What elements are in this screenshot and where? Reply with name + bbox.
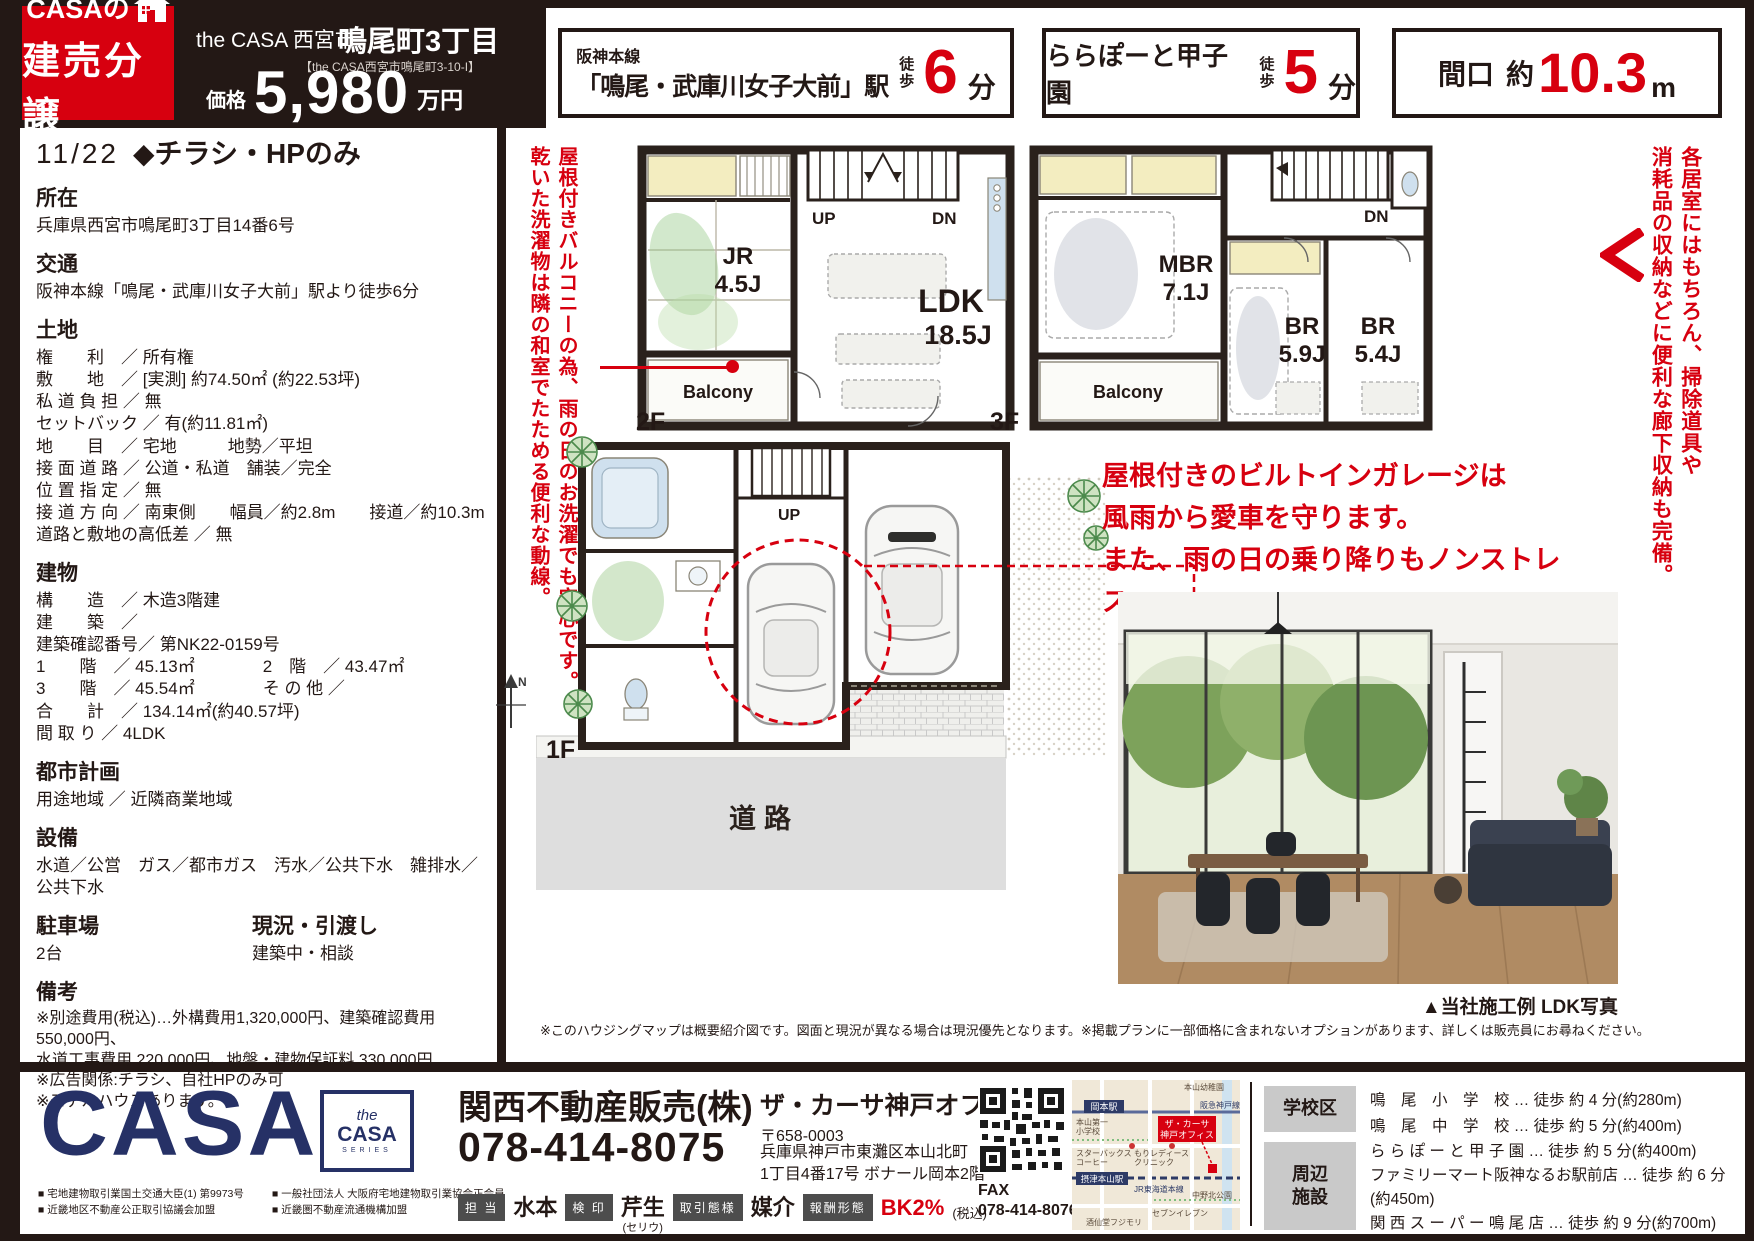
- map-park: 中野北公園: [1192, 1190, 1232, 1200]
- header-series: the CASA 西宮市: [196, 24, 356, 54]
- handover-value: 建築中・相談: [252, 943, 486, 965]
- price-block: 価格 5,980 万円: [206, 64, 463, 121]
- section-utilities: 設備 水道／公営 ガス／都市ガス 汚水／公共下水 雑排水／公共下水: [36, 822, 486, 899]
- frontage-value: 10.3: [1538, 48, 1647, 98]
- rail-line-label: 阪神本線: [576, 43, 888, 67]
- fax-label: FAX: [978, 1182, 1009, 1200]
- map-office-line2: 神戸オフィス: [1160, 1129, 1214, 1140]
- map-seven: セブンイレブン: [1152, 1208, 1208, 1218]
- school-district-label: 学校区: [1264, 1086, 1356, 1132]
- station-badge: 阪神本線 「鳴尾・武庫川女子大前」駅 徒歩 6 分: [558, 28, 1014, 118]
- section-body: 権 利 ／ 所有権 敷 地 ／ [実測] 約74.50㎡ (約22.53坪) 私…: [36, 347, 486, 546]
- section-heading: 土地: [36, 314, 486, 344]
- logo-casa-text: CASAの: [26, 0, 130, 26]
- section-access: 交通 阪神本線「鳴尾・武庫川女子大前」駅より徒歩6分: [36, 248, 486, 303]
- car-small: [748, 564, 834, 724]
- map-clinic-line1: もりレディース: [1134, 1148, 1189, 1158]
- staff-value-torihiki: 媒介: [751, 1194, 795, 1219]
- staff-value-kenin: 芹生: [621, 1194, 665, 1219]
- section-heading: 備考: [36, 976, 486, 1006]
- frontage-approx: 約: [1506, 53, 1534, 93]
- storage-copy-vertical: 各居室にはもちろん、掃除道具や 消耗品の収納などに便利な廊下収納も完備。: [1646, 146, 1705, 666]
- date-label: 11/22: [36, 138, 119, 170]
- facilities-label: 周辺 施設: [1264, 1142, 1356, 1230]
- facilities-lines: ら ら ぽ ー と 甲 子 園 … 徒歩 約 5 分(約400m) ファミリーマ…: [1370, 1140, 1742, 1241]
- house-icon: [134, 0, 170, 22]
- minutes-unit: 分: [968, 66, 996, 114]
- stairs-up-label-1f: UP: [778, 507, 801, 524]
- storage-copy-1: 各居室にはもちろん、掃除道具や: [1675, 146, 1704, 666]
- parking-value: 2台: [36, 943, 252, 965]
- room-size-jr: 4.5J: [715, 271, 762, 298]
- flyer-page: CASAの 建売分譲 the CASA 西宮市 鳴尾町3丁目 【the CASA…: [0, 0, 1754, 1241]
- room-label-jr: JR: [723, 243, 754, 270]
- ad-restriction-flag: ◆チラシ・HPのみ: [133, 132, 361, 172]
- section-land: 土地 権 利 ／ 所有権 敷 地 ／ [実測] 約74.50㎡ (約22.53坪…: [36, 314, 486, 546]
- section-body: 阪神本線「鳴尾・武庫川女子大前」駅より徒歩6分: [36, 281, 486, 303]
- stairs-dn-label-3f: DN: [1364, 207, 1389, 226]
- room-size-br1: 5.9J: [1279, 341, 1326, 368]
- floor-label-2f: 2F: [636, 408, 665, 437]
- stairs-dn-label: DN: [932, 209, 957, 228]
- compass-icon: N: [490, 672, 532, 736]
- walk-label: 徒歩: [1259, 56, 1274, 90]
- staff-row: 担 当 水本 検 印 芹生 (セリウ) 取引態様 媒介 報酬形態 BK2% (税…: [458, 1194, 987, 1235]
- section-heading: 設備: [36, 822, 486, 852]
- section-heading: 都市計画: [36, 756, 486, 786]
- north-label: N: [518, 675, 527, 689]
- map-school-line1: 本山第一: [1076, 1117, 1108, 1127]
- map-office-line1: ザ・カーサ: [1165, 1119, 1210, 1129]
- lalaport-badge: ららぽーと甲子園 徒歩 5 分: [1042, 28, 1360, 118]
- divider-vertical: [497, 128, 506, 1062]
- footer-casa-logo: CASA: [40, 1077, 318, 1169]
- map-station-settsu: 摂津本山駅: [1081, 1174, 1124, 1184]
- map-starbucks-line2: コーヒー: [1076, 1158, 1108, 1167]
- chevron-pointer-icon: [1600, 228, 1644, 282]
- station-name: 「鳴尾・武庫川女子大前」駅: [576, 67, 888, 103]
- map-rail-jr: JR東海道本線: [1134, 1184, 1184, 1194]
- price-unit: 万円: [417, 81, 463, 121]
- staff-label-tanto: 担 当: [458, 1194, 505, 1221]
- map-clinic-line2: クリニック: [1134, 1158, 1174, 1167]
- property-panel: 11/22 ◆チラシ・HPのみ 所在 兵庫県西宮市鳴尾町3丁目14番6号 交通 …: [36, 132, 486, 1124]
- price-value: 5,980: [254, 64, 409, 121]
- section-body: 用途地域 ／ 近隣商業地域: [36, 789, 486, 811]
- frame-left: [0, 0, 20, 1241]
- section-heading: 建物: [36, 557, 486, 587]
- map-station-okamoto: 岡本駅: [1090, 1101, 1117, 1112]
- walk-minutes: 5: [1284, 45, 1318, 101]
- handover-heading: 現況・引渡し: [252, 910, 486, 940]
- license-col-1: ■ 宅地建物取引業国土交通大臣(1) 第9973号 ■ 近畿地区不動産公正取引協…: [38, 1186, 273, 1219]
- room-size-br2: 5.4J: [1355, 341, 1402, 368]
- walk-label: 徒歩: [898, 56, 913, 90]
- section-heading: 所在: [36, 182, 486, 212]
- parking-heading: 駐車場: [36, 910, 252, 940]
- map-kindergarten: 本山幼稚園: [1184, 1082, 1224, 1092]
- the-casa-series-logo: the CASA SERIES: [320, 1090, 414, 1172]
- staff-value-kenin-reading: (セリウ): [621, 1219, 665, 1235]
- series-sub: SERIES: [342, 1147, 392, 1154]
- staff-label-torihiki: 取引態様: [673, 1194, 743, 1221]
- fax-number: 078-414-8076: [978, 1202, 1078, 1220]
- section-city-planning: 都市計画 用途地域 ／ 近隣商業地域: [36, 756, 486, 811]
- balcony-label-3f: Balcony: [1093, 382, 1163, 402]
- minutes-unit: 分: [1328, 66, 1356, 114]
- photo-caption: ▲当社施工例 LDK写真: [1118, 992, 1618, 1019]
- office-address: 兵庫県神戸市東灘区本山北町 1丁目4番17号 ボナール岡本2階: [760, 1142, 985, 1185]
- frontage-unit: m: [1651, 72, 1676, 114]
- floor-label-1f: 1F: [546, 736, 575, 765]
- casa-brand-logo: CASAの 建売分譲: [22, 6, 174, 120]
- section-body: 構 造 ／ 木造3階建 建 築 ／ 建築確認番号／ 第NK22-0159号 1 …: [36, 590, 486, 745]
- storage-copy-2: 消耗品の収納などに便利な廊下収納も完備。: [1646, 146, 1675, 666]
- map-sake-shop: 酒仙堂フジモリ: [1086, 1217, 1142, 1227]
- disclaimer-text: ※このハウジングマップは概要紹介図です。図面と現況が異なる場合は現況優先となりま…: [540, 1020, 1740, 1039]
- section-heading: 交通: [36, 248, 486, 278]
- balcony-leader-dot: [726, 360, 739, 373]
- footer-divider: [1250, 1082, 1252, 1226]
- section-location: 所在 兵庫県西宮市鳴尾町3丁目14番6号: [36, 182, 486, 237]
- garage-leader-line: [860, 560, 1200, 594]
- section-body: 兵庫県西宮市鳴尾町3丁目14番6号: [36, 215, 486, 237]
- room-label-mbr: MBR: [1159, 251, 1214, 278]
- frame-right: [1745, 0, 1754, 1241]
- floor-plan-2f: JR 4.5J Balcony UP DN LDK 18.5J: [596, 142, 1016, 434]
- company-name: 関西不動産販売(株): [458, 1080, 753, 1129]
- page-title: 鳴尾町3丁目: [338, 18, 499, 60]
- room-size-mbr: 7.1J: [1163, 279, 1210, 306]
- section-building: 建物 構 造 ／ 木造3階建 建 築 ／ 建築確認番号／ 第NK22-0159号…: [36, 557, 486, 745]
- frontage-badge: 間口 約 10.3 m: [1392, 28, 1722, 118]
- room-label-br2: BR: [1361, 313, 1396, 340]
- map-school-line2: 小学校: [1076, 1126, 1100, 1136]
- site-plan-1f: 道路 UP: [536, 436, 1116, 901]
- room-label-br1: BR: [1285, 313, 1320, 340]
- walk-minutes: 6: [923, 45, 957, 101]
- staff-value-hoshu: BK2%: [881, 1194, 945, 1219]
- access-map: 岡本駅 本山幼稚園 阪急神戸線 ザ・カーサ 神戸オフィス 本山第一 小学校 スタ…: [1072, 1080, 1240, 1230]
- map-rail-hankyu: 阪急神戸線: [1200, 1100, 1240, 1110]
- staff-label-hoshu: 報酬形態: [803, 1194, 873, 1221]
- frontage-label: 間口: [1438, 53, 1494, 93]
- section-parking: 駐車場 2台 現況・引渡し 建築中・相談: [36, 910, 486, 965]
- logo-kenbai-text: 建売分譲: [22, 30, 174, 140]
- road-label: 道路: [729, 803, 799, 834]
- balcony-leader-line: [600, 366, 736, 369]
- room-label-ldk: LDK: [918, 283, 984, 319]
- room-size-ldk: 18.5J: [924, 320, 992, 350]
- lalaport-name: ららぽーと甲子園: [1046, 36, 1249, 110]
- series-the: the: [357, 1108, 378, 1123]
- floor-label-3f: 3F: [990, 408, 1019, 437]
- stairs-up-label: UP: [812, 209, 836, 228]
- map-starbucks-line1: スターバックス: [1076, 1149, 1132, 1158]
- qr-code: [978, 1086, 1066, 1174]
- staff-value-tanto: 水本: [513, 1194, 557, 1219]
- ldk-photo: [1118, 592, 1618, 984]
- balcony-label-2f: Balcony: [683, 382, 753, 402]
- phone-number: 078-414-8075: [458, 1124, 725, 1171]
- floor-plan-3f: MBR 7.1J Balcony DN BR 5.9J BR 5.4J: [1026, 142, 1436, 434]
- series-casa: CASA: [337, 1123, 397, 1146]
- section-body: 水道／公営 ガス／都市ガス 汚水／公共下水 雑排水／公共下水: [36, 855, 486, 899]
- price-label: 価格: [206, 84, 246, 121]
- school-district-lines: 鳴 尾 小 学 校 … 徒歩 約 4 分(約280m) 鳴 尾 中 学 校 … …: [1370, 1088, 1742, 1140]
- staff-label-kenin: 検 印: [565, 1194, 612, 1221]
